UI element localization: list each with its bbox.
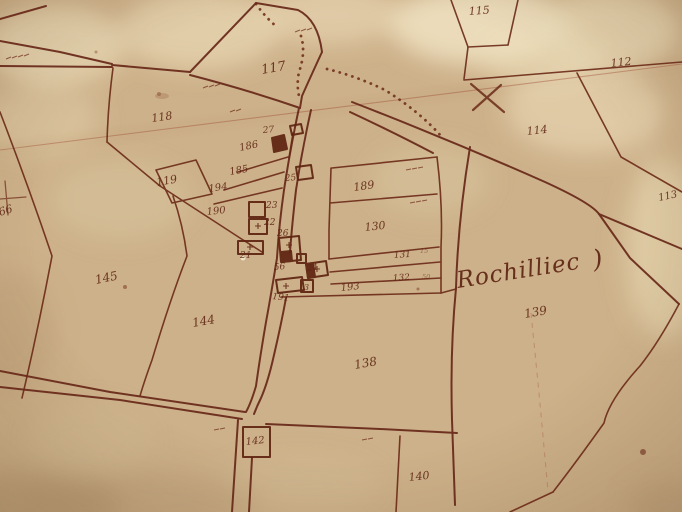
cadastral-map: 1151171181121141131191861851941906614514… [0,0,682,512]
building-label-24: 24 [305,262,319,274]
parcel-label-114: 114 [526,123,548,138]
building-label-191: 191 [272,292,290,304]
parcel-label-130: 130 [364,219,386,234]
building-label-56: 56 [273,262,286,273]
building-label-3: 3 [304,283,309,292]
building-label-23: 23 [265,201,278,211]
parcel-label-15: 15 [420,247,428,255]
parcel-label-190: 190 [206,205,227,218]
parcel-label-115: 115 [468,4,490,18]
parcel-label-140: 140 [408,469,430,484]
parcel-label-193: 193 [340,281,360,294]
building-label-21: 21 [239,251,251,261]
parcel-label-132: 132 [393,273,411,284]
parcel-label-50: 50 [422,273,430,281]
building-label-22: 22 [263,218,276,228]
building-label-25: 25 [283,173,297,184]
building-label-27: 27 [261,125,275,136]
parcel-label-131: 131 [394,250,412,261]
parcel-label-112: 112 [610,55,632,70]
cadastral-map-photo: 1151171181121141131191861851941906614514… [0,0,682,512]
parcel-label-142: 142 [245,435,265,448]
building-label-26: 26 [276,229,289,239]
